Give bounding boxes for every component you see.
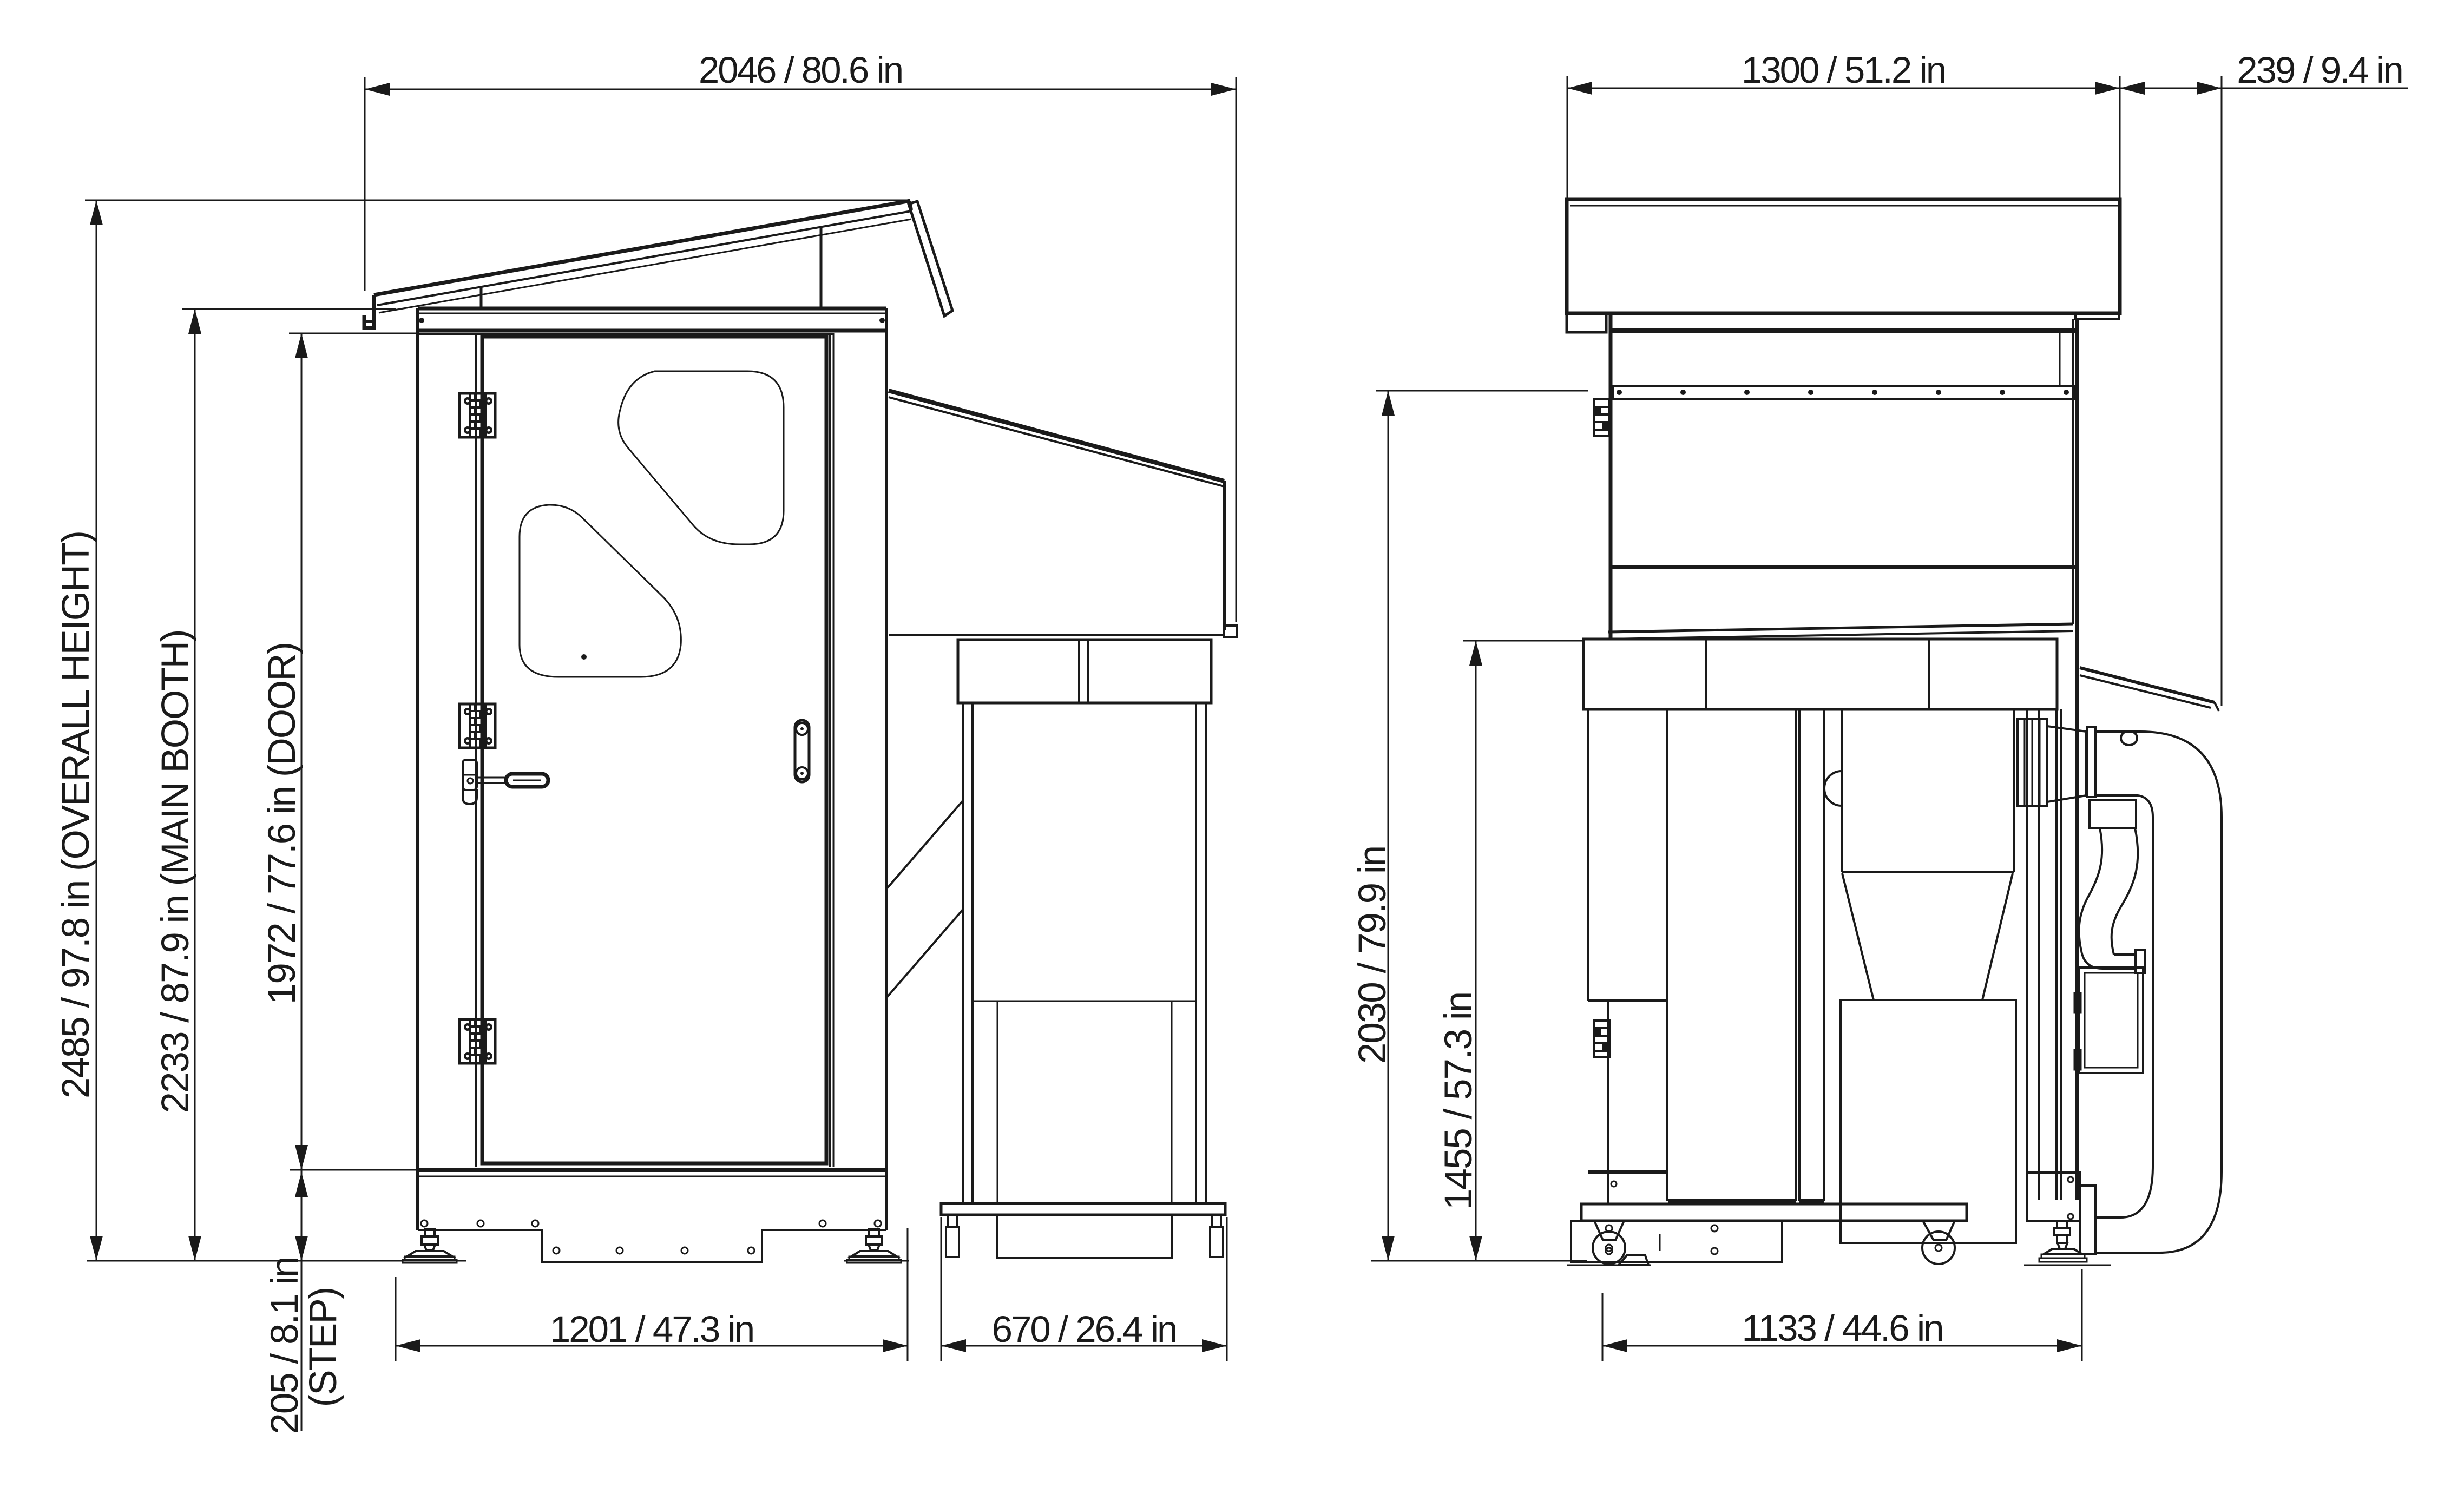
svg-text:1300 / 51.2 in: 1300 / 51.2 in (1742, 49, 1945, 91)
svg-text:2233 / 87.9 in (MAIN BOOTH): 2233 / 87.9 in (MAIN BOOTH) (154, 630, 197, 1114)
svg-text:1201 / 47.3 in: 1201 / 47.3 in (550, 1308, 753, 1350)
svg-text:1133 / 44.6 in: 1133 / 44.6 in (1742, 1307, 1942, 1349)
svg-text:1972 / 77.6 in (DOOR): 1972 / 77.6 in (DOOR) (261, 643, 304, 1004)
svg-text:(STEP): (STEP) (302, 1288, 345, 1407)
svg-text:205 / 8.1 in: 205 / 8.1 in (264, 1257, 306, 1434)
svg-text:2030 / 79.9 in: 2030 / 79.9 in (1351, 846, 1394, 1064)
svg-text:1455 / 57.3 in: 1455 / 57.3 in (1437, 992, 1480, 1210)
svg-text:2485 / 97.8 in (OVERALL HEIGHT: 2485 / 97.8 in (OVERALL HEIGHT) (55, 531, 97, 1098)
svg-text:239 / 9.4 in: 239 / 9.4 in (2237, 49, 2402, 91)
svg-text:2046 / 80.6 in: 2046 / 80.6 in (699, 49, 902, 91)
svg-text:670 / 26.4 in: 670 / 26.4 in (992, 1308, 1177, 1350)
